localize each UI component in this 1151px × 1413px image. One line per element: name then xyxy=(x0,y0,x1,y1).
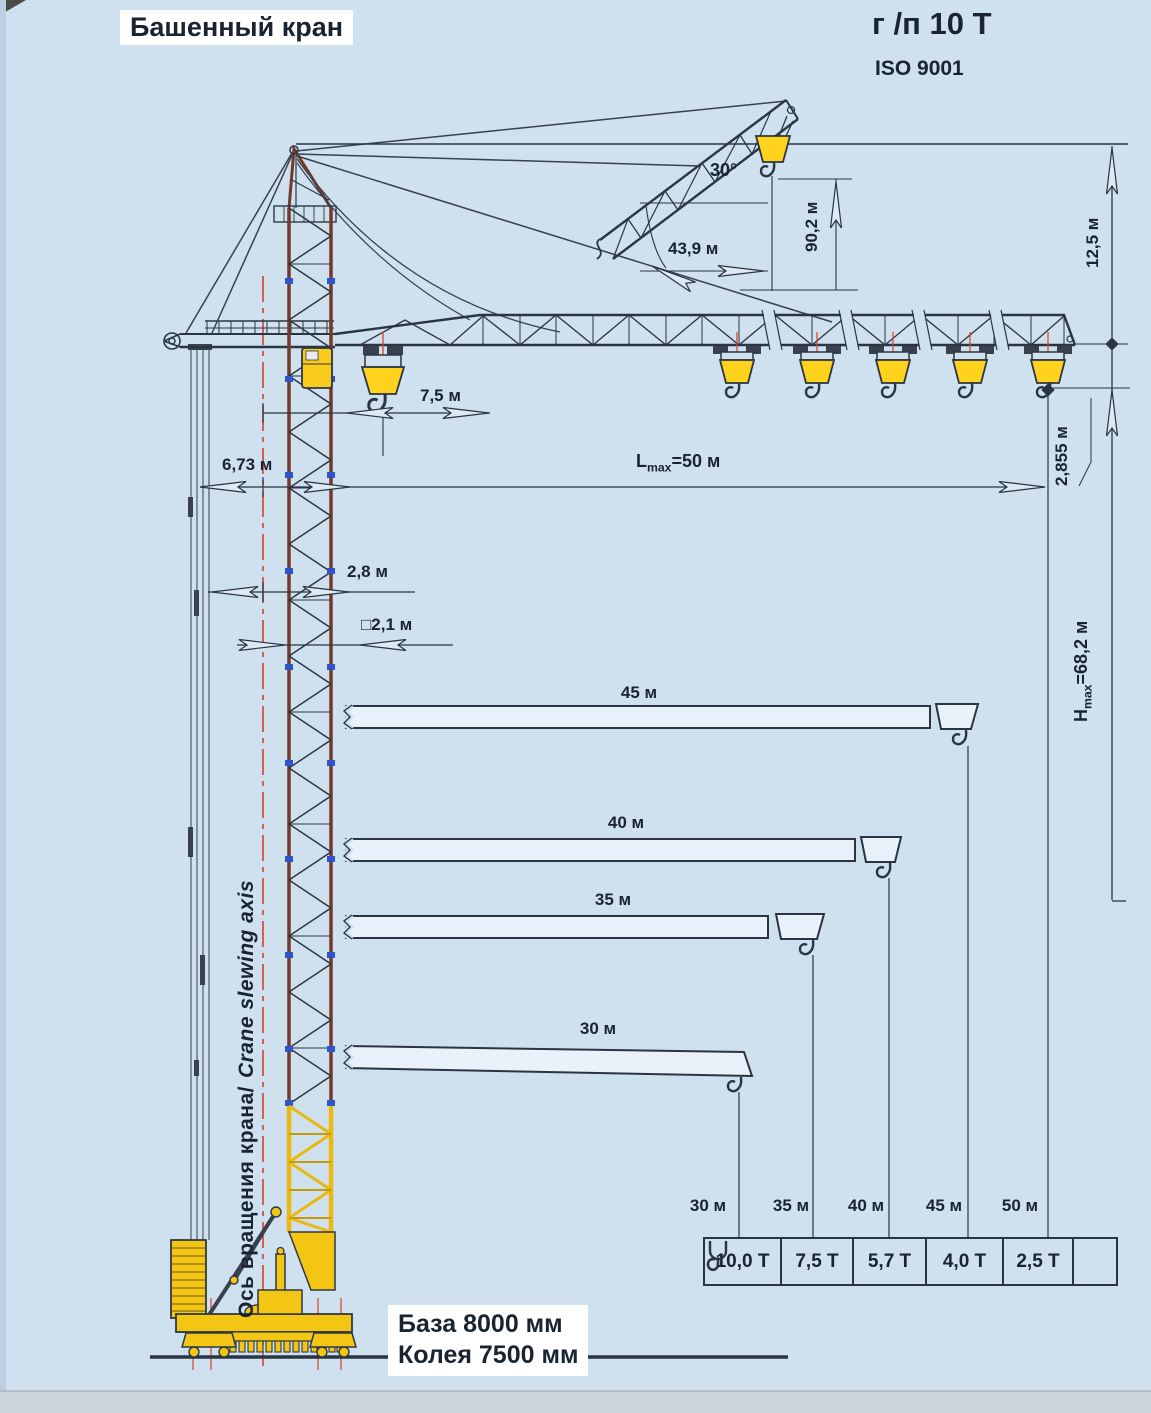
min-radius-trolley xyxy=(362,332,404,456)
slewing-axis-label-en: Crane slewing axis xyxy=(235,880,258,1078)
operator-cab xyxy=(302,348,332,388)
page-title: Башенный кран xyxy=(120,10,353,45)
table-radius-35: 35 м xyxy=(773,1197,809,1214)
tower-apex xyxy=(274,146,336,222)
base-dimensions-label: База 8000 мм Колея 7500 мм xyxy=(388,1305,588,1376)
dim-axis-offset: 2,8 м xyxy=(347,563,388,580)
jib-variant-bars xyxy=(346,704,978,1076)
dim-counterjib-radius: 6,73 м xyxy=(222,456,272,473)
jib-variant-30-label: 30 м xyxy=(580,1020,616,1037)
capacity-cell: 5,7 Т xyxy=(852,1239,925,1284)
hmax-letter: H xyxy=(1071,709,1091,722)
counterweight-ropes xyxy=(191,348,209,1240)
lmax-sub: max xyxy=(647,461,672,475)
tower-section-dimension xyxy=(237,640,453,651)
dim-top-offset: 12,5 м xyxy=(1084,218,1101,268)
capacity-value: 4,0 Т xyxy=(943,1251,986,1273)
crane-datasheet-page: Башенный кран г /п 10 Т ISO 9001 30° 43,… xyxy=(0,0,1151,1413)
hook-icon xyxy=(705,1239,731,1277)
table-radius-50: 50 м xyxy=(1002,1197,1038,1214)
capacity-cell: 7,5 Т xyxy=(780,1239,852,1284)
capacity-value: 5,7 Т xyxy=(868,1251,911,1273)
hmax-value: =68,2 м xyxy=(1071,621,1091,685)
jib-bar-hooks xyxy=(728,730,966,1091)
base-length: База 8000 мм xyxy=(398,1309,578,1340)
min-radius-dimension xyxy=(263,403,490,423)
table-radius-30: 30 м xyxy=(690,1197,726,1214)
capacity-note: г /п 10 Т xyxy=(872,8,992,39)
centerlines xyxy=(193,276,341,1370)
slewing-axis-label-ru: Ось вращения крана/ xyxy=(235,1086,258,1318)
iso-note: ISO 9001 xyxy=(875,58,964,79)
rope-clamps xyxy=(188,344,212,1076)
right-bogie xyxy=(310,1333,356,1347)
capacity-value: 2,5 Т xyxy=(1016,1251,1059,1273)
lmax-letter: L xyxy=(636,451,647,471)
table-drop-lines xyxy=(739,746,968,1237)
ballast-stack xyxy=(171,1240,206,1318)
main-jib xyxy=(335,315,1075,345)
hook-cell xyxy=(1072,1239,1116,1284)
radius-dimension-line xyxy=(200,477,1045,497)
track-width: Колея 7500 мм xyxy=(398,1340,578,1371)
jib-bar-break-edges xyxy=(344,705,352,1069)
raised-jib-dimensions xyxy=(640,179,858,292)
jib-variant-40-label: 40 м xyxy=(608,814,644,831)
dim-raised-radius: 43,9 м xyxy=(668,240,718,257)
jib-variant-35-label: 35 м xyxy=(595,891,631,908)
capacity-value: 7,5 Т xyxy=(795,1251,838,1273)
dim-min-radius: 7,5 м xyxy=(420,387,461,404)
jib-variant-45-label: 45 м xyxy=(621,684,657,701)
dim-hook-drop: 2,855 м xyxy=(1053,426,1070,486)
capacity-cell: 4,0 Т xyxy=(925,1239,1002,1284)
lmax-value: =50 м xyxy=(672,451,721,471)
left-bogie xyxy=(182,1333,236,1347)
dim-hmax: Hmax=68,2 м xyxy=(1072,621,1094,722)
table-radius-40: 40 м xyxy=(848,1197,884,1214)
load-capacity-table: 10,0 Т 7,5 Т 5,7 Т 4,0 Т 2,5 Т xyxy=(703,1237,1118,1286)
tower-mast xyxy=(289,208,331,1106)
table-radius-45: 45 м xyxy=(926,1197,962,1214)
raised-jib xyxy=(597,100,798,291)
slewing-platform xyxy=(176,1314,352,1332)
dim-raised-angle: 30° xyxy=(710,161,737,179)
capacity-cell: 2,5 Т xyxy=(1002,1239,1072,1284)
slewing-axis-label: Ось вращения крана/Crane slewing axis xyxy=(236,880,257,1318)
dim-lmax: Lmax=50 м xyxy=(636,452,720,474)
crane-diagram xyxy=(0,0,1151,1413)
hmax-sub: max xyxy=(1081,685,1095,710)
jib-hook-blocks xyxy=(713,332,1072,397)
dim-raised-height: 90,2 м xyxy=(803,202,820,252)
dim-tower-section: □2,1 м xyxy=(361,616,412,633)
pendant-ropes xyxy=(186,101,832,333)
